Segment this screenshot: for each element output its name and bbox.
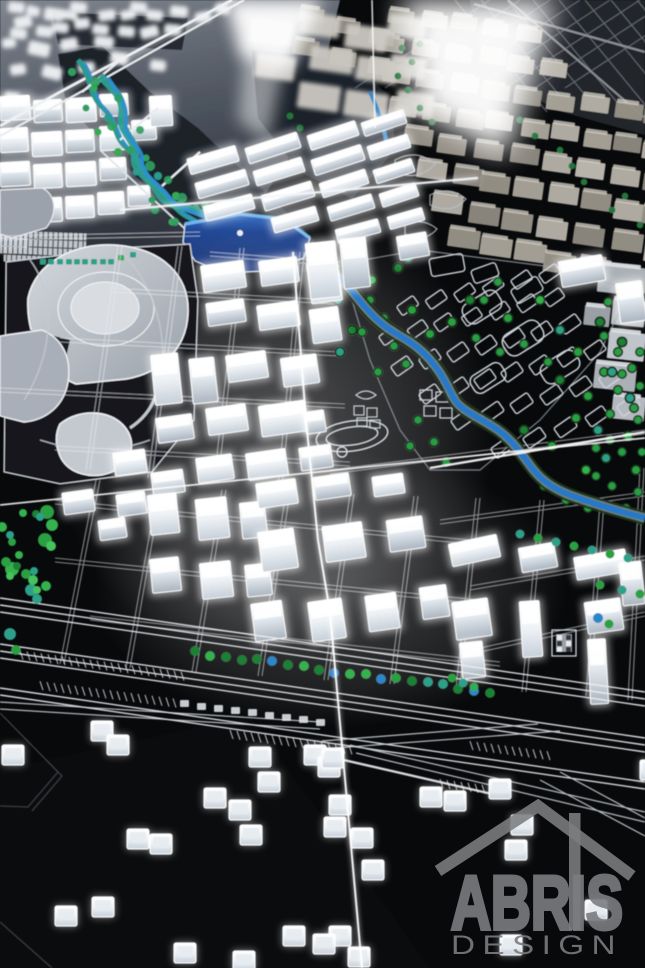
svg-text:DESIGN: DESIGN (451, 930, 623, 960)
